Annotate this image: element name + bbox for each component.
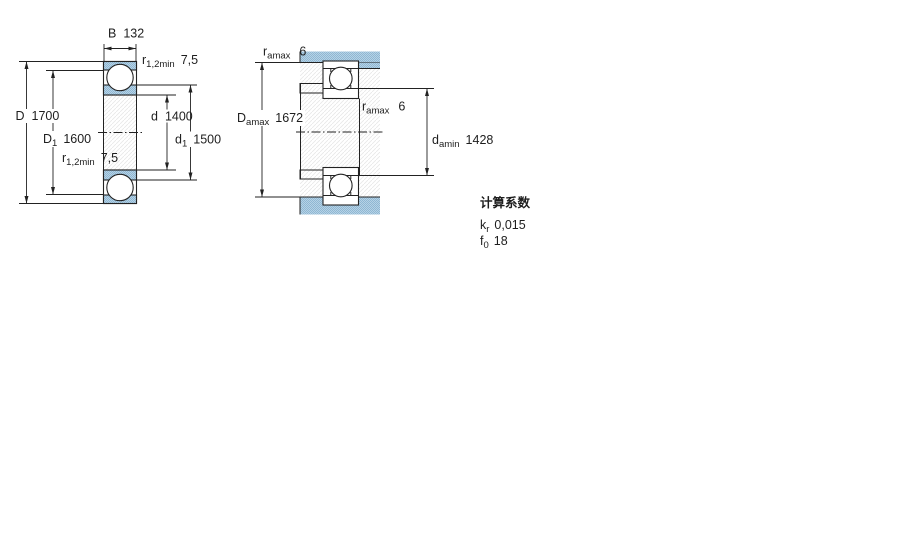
- arrowhead: [25, 196, 29, 204]
- calc-factor-f0: f018: [480, 234, 508, 251]
- calc-factors-heading: 计算系数: [480, 195, 531, 210]
- calc-factor-kr: kr0,015: [480, 218, 526, 235]
- arrowhead: [25, 62, 29, 70]
- arrowhead: [51, 71, 55, 79]
- calculation-factors-block: 计算系数 kr0,015 f018: [480, 195, 531, 251]
- dim-label-D: D1700: [16, 109, 60, 123]
- arrowhead: [189, 173, 193, 181]
- arrowhead: [165, 95, 169, 103]
- arrowhead: [425, 168, 429, 176]
- arrowhead: [189, 85, 193, 93]
- dim-label-B: B132: [108, 27, 144, 41]
- arrowhead: [425, 89, 429, 97]
- dim-label-damin: damin1428: [432, 133, 493, 150]
- dim-label-d: d1400: [151, 110, 193, 124]
- mounting-dimensions-view: ramax6 ramax6 Damax1672 damin1428: [235, 45, 493, 215]
- arrowhead: [51, 187, 55, 195]
- arrowhead: [260, 190, 264, 198]
- ball-top: [330, 67, 353, 90]
- dim-label-d1: d11500: [175, 133, 221, 150]
- ball-bottom: [107, 174, 133, 200]
- bearing-drawing-canvas: B132 r1,2min7,5 D1700 d1400 D11600 d1150…: [0, 0, 900, 560]
- dim-label-r12min-top: r1,2min7,5: [142, 53, 198, 70]
- bearing-drawing-page: B132 r1,2min7,5 D1700 d1400 D11600 d1150…: [0, 0, 900, 560]
- arrowhead: [260, 63, 264, 71]
- housing-shoulder-top-right: [359, 63, 381, 69]
- ball-top: [107, 64, 133, 90]
- arrowhead: [165, 163, 169, 171]
- arrowhead: [129, 47, 137, 51]
- bearing-cross-section-view: B132 r1,2min7,5 D1700 d1400 D11600 d1150…: [13, 27, 221, 204]
- arrowhead: [104, 47, 112, 51]
- ball-bottom: [330, 174, 353, 197]
